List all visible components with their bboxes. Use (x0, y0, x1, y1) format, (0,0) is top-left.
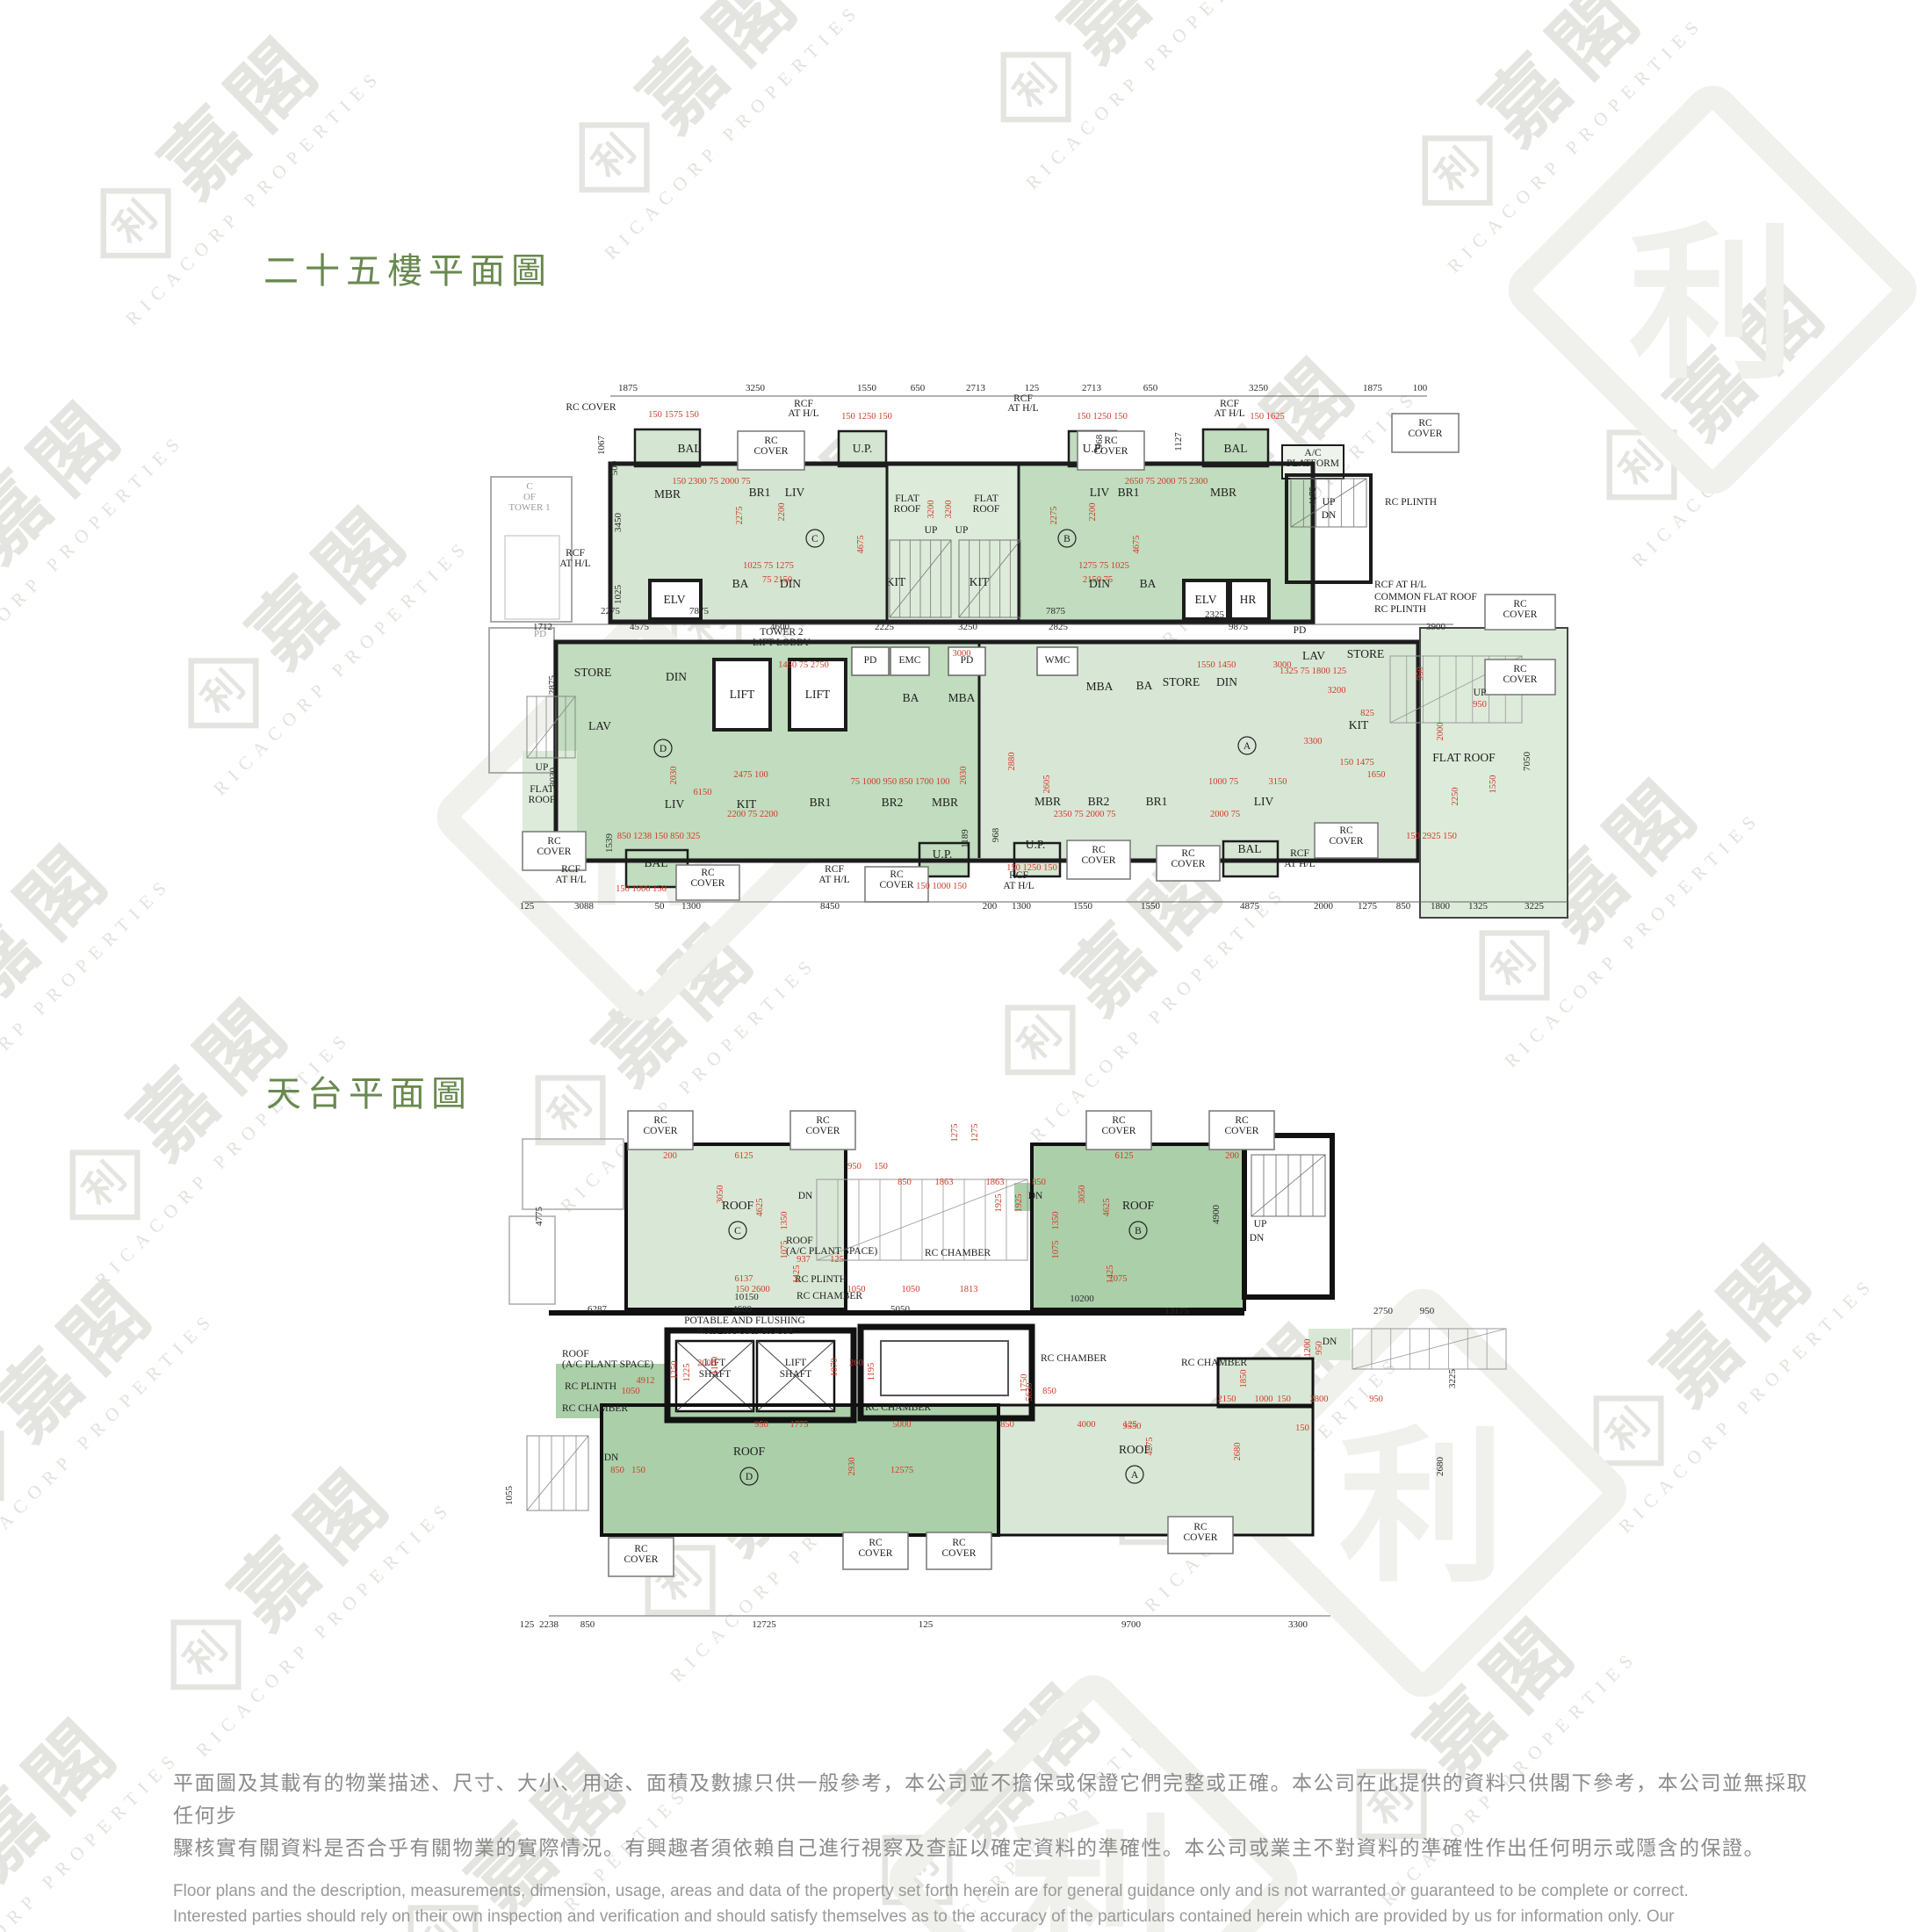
plan-label: 3225 (1525, 901, 1545, 912)
plan-label: COVER (1171, 859, 1206, 869)
plan-label: 2713 (1082, 383, 1102, 393)
plan-label: 2200 (777, 503, 787, 522)
ricacorp-watermark: 利嘉閣RICACORP PROPERTIES (122, 1426, 458, 1762)
plan-label: 1195 (867, 1363, 876, 1381)
plan-label: 1650 (1367, 770, 1386, 780)
plan-label: 4675 (856, 536, 866, 554)
plan-label: 968 (991, 827, 1001, 842)
plan-label: 2000 75 (1210, 810, 1240, 819)
plan-label: 2200 (1088, 503, 1098, 522)
plan-label: 4575 (630, 622, 650, 632)
ricacorp-logo-icon: 利 (101, 188, 171, 258)
plan-label: COMMON FLAT ROOF (1374, 592, 1477, 602)
plan-label: COVER (1409, 429, 1443, 439)
plan-label: 13175 (1164, 1306, 1189, 1316)
plan-label: MBA (1086, 680, 1114, 693)
plan-label: 1925 (994, 1194, 1004, 1213)
plan-label: RC COVER (566, 402, 616, 413)
plan-label: U.P. (933, 847, 953, 861)
plan-label: 4600 (770, 622, 790, 632)
plan-label: TOWER 1 (508, 502, 550, 513)
plan-label: PD (864, 655, 877, 666)
plan-label: 5000 (893, 1420, 912, 1430)
plan-label: ROOF (529, 795, 556, 805)
plan-label: 1350 (780, 1212, 789, 1230)
plan-label: 125 (919, 1619, 934, 1630)
plan-label: COVER (1225, 1126, 1259, 1136)
plan-label: 2275 (1049, 507, 1059, 525)
plan-label: 2225 (875, 622, 895, 632)
plan-label: 2750 (1373, 1306, 1394, 1316)
plan-label: STORE (1347, 647, 1385, 660)
ricacorp-watermark: 利嘉閣RICACORP PROPERTIES (21, 956, 357, 1292)
plan-label: MBR (932, 796, 958, 809)
plan-label: 4900 (1211, 1205, 1222, 1225)
plan-label: 3200 (926, 501, 936, 519)
ricacorp-logo-icon: 利 (1423, 135, 1493, 205)
plan-label: DN (1322, 510, 1337, 521)
ricacorp-logo-icon: 利 (0, 1431, 4, 1501)
plan-label: 75 1000 950 850 1700 100 (851, 777, 950, 787)
plan-label: 4675 (1132, 536, 1142, 554)
unit-circle-label: D (660, 744, 667, 754)
plan-label: 200 (849, 1359, 863, 1368)
plan-label: COVER (1082, 855, 1116, 866)
plan-label: 1075 (1051, 1241, 1061, 1259)
plan-label: RC (701, 868, 715, 878)
plan-label: 150 1000 150 (916, 882, 967, 891)
plan-label: LIV (1090, 486, 1110, 499)
plan-label: DN (798, 1191, 813, 1201)
plan-label: 1050 (902, 1285, 920, 1294)
plan-label: 1300 (1012, 901, 1032, 912)
plan-label: 150 (1277, 1395, 1291, 1404)
plan-label: RC PLINTH (795, 1274, 847, 1285)
plan-label: 850 (1396, 901, 1411, 912)
plan-label: 75 2150 (762, 575, 792, 585)
plan-label: 1050 (622, 1387, 640, 1396)
plan-label: 3150 (1269, 777, 1287, 787)
plan-label: 5630 (1025, 1383, 1034, 1402)
plan-label: COVER (537, 847, 572, 857)
disclaimer: 平面圖及其載有的物業描述、尺寸、大小、用途、面積及數據只供一般參考，本公司並不擔… (173, 1767, 1820, 1932)
plan-label: 6125 (735, 1151, 753, 1161)
plan-label: 150 1575 150 (648, 410, 699, 420)
plan-label: 1000 75 (1208, 777, 1238, 787)
plan-label: 850 1238 150 850 325 (617, 832, 701, 841)
plan-label: MBR (1034, 795, 1061, 808)
plan-label: 6137 (735, 1274, 753, 1284)
plan-label: RC (1235, 1115, 1249, 1126)
plan-label: 2000 (1314, 901, 1334, 912)
plan-label: 2680 (1435, 1457, 1445, 1477)
plan-label: FLAT (895, 494, 919, 504)
plan-label: 12725 (752, 1619, 776, 1630)
page: 利嘉閣RICACORP PROPERTIES利嘉閣RICACORP PROPER… (0, 0, 1932, 1932)
plan-label: DIN (1216, 675, 1237, 688)
plan-label: MBR (1210, 486, 1236, 499)
ricacorp-logo-icon: 利 (1594, 1395, 1664, 1466)
disclaimer-zh-line1: 平面圖及其載有的物業描述、尺寸、大小、用途、面積及數據只供一般參考，本公司並不擔… (173, 1767, 1820, 1832)
plan-label: 3200 (944, 501, 954, 519)
plan-label: 1225 (682, 1364, 692, 1382)
plan-label: UP (925, 525, 938, 536)
plan-label: 1539 (604, 833, 615, 854)
plan-label: AT H/L (1003, 881, 1034, 891)
ricacorp-watermark: 利嘉閣RICACORP PROPERTIES (952, 0, 1287, 194)
plan-label: KIT (886, 575, 906, 588)
plan-label: 125 (520, 1619, 535, 1630)
ricacorp-logo-icon: 利 (189, 658, 259, 728)
plan-label: 1000 (1255, 1395, 1273, 1404)
plan-label: 850 (1000, 1420, 1014, 1430)
plan-label: LIFT (730, 688, 755, 701)
plan-label: BR1 (1146, 795, 1168, 808)
plan-label: COVER (942, 1548, 977, 1559)
plan-label: UP (1323, 497, 1336, 508)
floor-plan-roof: RCCOVERRCCOVERRCCOVERRCCOVERRCCOVERRCCOV… (487, 1102, 1603, 1655)
plan-label: 200 (983, 901, 998, 912)
plan-label: LIV (1254, 795, 1274, 808)
plan-label: 950 (754, 1420, 768, 1430)
plan-label: 3300 (1304, 737, 1323, 746)
plan-label: 1425 (1106, 1265, 1115, 1284)
plan-label: 1325 75 1800 125 (1280, 667, 1346, 676)
plan-label: RC (1104, 436, 1118, 446)
plan-label: 1189 (960, 829, 970, 848)
plan-label: 9550 (1123, 1422, 1142, 1431)
plan-label: WATER PUMP ROOM (696, 1326, 792, 1337)
ricacorp-logo-icon: 利 (1001, 52, 1071, 122)
plan-label: RC (952, 1538, 966, 1548)
plan-label: RC (547, 836, 561, 847)
plan-label: LIFT (805, 688, 831, 701)
unit-circle-label: A (1131, 1470, 1139, 1481)
plan-label: COVER (1102, 1126, 1136, 1136)
unit-circle-label: B (1063, 534, 1071, 544)
plan-label: KIT (1349, 718, 1369, 732)
plan-label: 1875 (618, 383, 638, 393)
plan-label: 4625 (1102, 1199, 1112, 1217)
plan-label: 2800 (1310, 1395, 1329, 1404)
plan-label: 2000 (1436, 723, 1445, 741)
plan-label: 1055 (504, 1486, 515, 1506)
plan-label: 150 1000 150 (616, 884, 667, 894)
plan-label: RC CHAMBER (1041, 1353, 1107, 1364)
plan-label: 125 (830, 1255, 844, 1265)
plan-label: 50 (655, 901, 666, 912)
plan-label: AT H/L (1007, 403, 1038, 414)
plan-label: BR1 (810, 796, 832, 809)
plan-label: BR2 (1088, 795, 1110, 808)
plan-label: LAV (1302, 649, 1325, 662)
plan-label: RCF AT H/L (1374, 580, 1426, 590)
plan-label: KIT (970, 575, 990, 588)
plan-label: MBA (948, 691, 976, 704)
plan-label: 150 (1295, 1424, 1309, 1433)
plan-label: POTABLE AND FLUSHING (684, 1316, 805, 1326)
plan-label: RC (869, 1538, 883, 1548)
plan-label: 1550 (1073, 901, 1093, 912)
plan-label: 150 1625 (1250, 412, 1284, 422)
plan-label: 2275 (601, 606, 621, 616)
plan-label: LIFT LOBBY (753, 638, 811, 648)
plan-label: 1275 (970, 1124, 980, 1143)
plan-label: 950 (1369, 1395, 1383, 1404)
plan-label: 5050 (890, 1304, 911, 1315)
plan-label: RC (653, 1115, 667, 1126)
plan-label: 9875 (1229, 622, 1249, 632)
plan-label: 3200 (1328, 686, 1346, 696)
plan-label: 4175 (1308, 487, 1318, 507)
plan-label: ROOF (894, 504, 921, 515)
plan-label: U.P. (1083, 442, 1103, 455)
plan-label: 1100 (710, 1357, 720, 1375)
plan-label: 2680 (1233, 1443, 1243, 1461)
plan-label: 1067 (596, 436, 607, 456)
plan-label: 6150 (694, 788, 712, 797)
plan-label: 200 (1225, 1151, 1239, 1161)
plan-label: RC (764, 436, 778, 446)
plan-label: UP (955, 525, 969, 536)
plan-label: 7050 (1522, 752, 1532, 772)
plan-label: BA (1140, 577, 1157, 590)
title-25th-floor-plan: 二十五樓平面圖 (263, 242, 552, 293)
plan-label: 2238 (539, 1619, 559, 1630)
plan-label: KIT (737, 797, 757, 811)
plan-label: HR (1240, 593, 1257, 606)
plan-label: BA (732, 577, 749, 590)
plan-label: 3250 (958, 622, 978, 632)
plan-label: COVER (1184, 1532, 1218, 1543)
plan-label: RC PLINTH (565, 1381, 616, 1392)
plan-label: 825 (1360, 709, 1374, 718)
plan-label: 950 (847, 1162, 861, 1171)
plan-label: WMC (1045, 655, 1071, 666)
plan-label: 2275 (735, 507, 745, 525)
plan-label: 200 (663, 1151, 677, 1161)
ricacorp-watermark: 利嘉閣RICACORP PROPERTIES (0, 1237, 220, 1573)
plan-label: ROOF (973, 504, 1000, 515)
ricacorp-watermark: 利嘉閣RICACORP PROPERTIES (530, 0, 866, 264)
plan-label: COVER (859, 1548, 893, 1559)
plan-label: 4875 (1240, 901, 1260, 912)
plan-label: RC PLINTH (1385, 497, 1437, 508)
plan-label: 2880 (1007, 753, 1017, 771)
plan-label: 1550 (1141, 901, 1161, 912)
plan-label: RC CHAMBER (562, 1403, 628, 1414)
plan-label: 3000 (953, 649, 971, 659)
ricacorp-logo-icon: 利 (1006, 1005, 1076, 1075)
plan-label: 4775 (534, 1207, 544, 1227)
plan-label: BAL (1238, 842, 1262, 855)
plan-label: 2875 (547, 675, 558, 696)
plan-label: 7875 (689, 606, 710, 616)
plan-label: 6287 (588, 1304, 608, 1315)
plan-label: 2713 (966, 383, 986, 393)
plan-label: 1775 (790, 1420, 809, 1430)
plan-label: 1350 (1051, 1212, 1061, 1230)
unit-circle-label: C (811, 534, 818, 544)
plan-label: 150 (631, 1466, 645, 1475)
plan-label: STORE (1163, 675, 1200, 688)
plan-label: 2325 (1205, 609, 1225, 620)
plan-label: 1925 (1014, 1194, 1024, 1213)
plan-label: PD (534, 629, 546, 639)
plan-label: DN (604, 1453, 619, 1463)
plan-label: AT H/L (555, 875, 586, 885)
plan-label: 1275 (1358, 901, 1378, 912)
plan-label: ROOF (722, 1199, 754, 1212)
plan-label: 1200 (1303, 1339, 1313, 1358)
plan-label: 850 (580, 1619, 595, 1630)
plan-label: 2475 100 (733, 770, 768, 780)
plan-label: 2825 (1049, 622, 1069, 632)
plan-label: 1325 (1468, 901, 1489, 912)
plan-label: RC (1193, 1522, 1207, 1532)
plan-label: 1863 (986, 1178, 1005, 1187)
plan-label: 1800 (1431, 901, 1451, 912)
plan-label: DIN (666, 670, 687, 683)
plan-label: 7875 (1046, 606, 1066, 616)
plan-label: 850 (1042, 1387, 1056, 1396)
plan-label: A/C (1304, 448, 1322, 458)
plan-label: UP (1474, 688, 1487, 698)
plan-label: 10200 (1070, 1294, 1094, 1304)
plan-label: U.P. (853, 442, 873, 455)
plan-label: PLATFORM (1287, 458, 1339, 469)
plan-label: 3050 (1078, 1186, 1087, 1204)
ricacorp-watermark: 利嘉閣RICACORP PROPERTIES (140, 465, 475, 800)
plan-label: DN (1028, 1191, 1043, 1201)
plan-label: 950 (1416, 667, 1425, 681)
plan-label: 4600 (732, 1304, 753, 1315)
plan-label: 1127 (1173, 432, 1184, 451)
plan-label: 3250 (746, 383, 766, 393)
plan-label: 650 (911, 383, 926, 393)
plan-label: 1275 (950, 1124, 960, 1143)
plan-label: RCF (566, 548, 585, 559)
plan-label: 1875 (1363, 383, 1383, 393)
plan-label: 950 (1473, 700, 1487, 710)
plan-label: 8450 (820, 901, 840, 912)
plan-label: LAV (588, 719, 611, 732)
plan-label: UP (536, 762, 549, 773)
plan-label: ROOF (733, 1445, 766, 1458)
plan-label: 150 1250 150 (1077, 412, 1128, 422)
plan-label: LIFT (785, 1358, 806, 1368)
plan-label: ROOF (1122, 1199, 1155, 1212)
plan-label: 850 (898, 1178, 912, 1187)
plan-label: 1070 (830, 1359, 840, 1377)
plan-label: 950 (1420, 1306, 1435, 1316)
plan-label: 1863 (935, 1178, 954, 1187)
plan-label: MBR (654, 487, 681, 501)
plan-label: UP (1254, 1219, 1267, 1229)
plan-label: RC (1112, 1115, 1126, 1126)
plan-label: 2150 75 (1083, 575, 1113, 585)
plan-label: ELV (663, 593, 685, 606)
plan-label: 2930 (847, 1458, 857, 1476)
plan-label: RC CHAMBER (1181, 1358, 1247, 1368)
plan-label: 4625 (755, 1199, 765, 1217)
plan-label: RC (1339, 825, 1353, 836)
plan-label: 3450 (613, 513, 624, 533)
plan-label: 200 (697, 1359, 711, 1368)
plan-label: 3250 (1249, 383, 1269, 393)
plan-label: AT H/L (818, 875, 849, 885)
plan-label: 950 (1315, 1341, 1324, 1355)
plan-label: 9700 (1121, 1619, 1142, 1630)
plan-label: FLAT (530, 784, 553, 795)
plan-label: BA (1136, 679, 1153, 692)
plan-label: RC CHAMBER (925, 1248, 991, 1258)
plan-label: RC (1181, 848, 1195, 859)
ricacorp-logo-icon: 利 (171, 1619, 241, 1690)
plan-label: BR2 (882, 796, 904, 809)
plan-label: RC (1092, 845, 1106, 855)
unit-circle-label: C (734, 1226, 741, 1236)
floor-plan-25f: 1875325015506502713125271365032501875100… (487, 364, 1603, 944)
disclaimer-en-line2: Interested parties should rely on their … (173, 1904, 1820, 1929)
plan-label: RC (890, 869, 904, 880)
plan-label: EMC (899, 655, 921, 666)
plan-label: ROOF (786, 1236, 813, 1246)
plan-label: 850 (610, 1466, 624, 1475)
disclaimer-en-line1: Floor plans and the description, measure… (173, 1878, 1820, 1904)
plan-label: 1550 (857, 383, 877, 393)
plan-label: RC (816, 1115, 830, 1126)
ricacorp-watermark: 利嘉閣RICACORP PROPERTIES (0, 1676, 185, 1932)
plan-label: AT H/L (1284, 859, 1315, 869)
plan-label: RC (634, 1544, 648, 1554)
plan-label: 2350 75 2000 75 (1054, 810, 1116, 819)
unit-circle-label: B (1135, 1226, 1142, 1236)
plan-label: 2605 (1042, 775, 1052, 794)
plan-label: 2150 (1218, 1395, 1236, 1404)
plan-label: COVER (880, 880, 914, 890)
ricacorp-logo-icon: 利 (580, 122, 650, 192)
plan-label: SHAFT (780, 1369, 811, 1380)
plan-label: 125 (1025, 383, 1040, 393)
plan-label: STORE (574, 666, 612, 679)
plan-label: AT H/L (559, 559, 590, 569)
plan-label: RC PLINTH (1374, 604, 1426, 615)
plan-label: BAL (678, 442, 702, 455)
plan-label: DN (1250, 1233, 1265, 1244)
plan-label: 1550 1450 (1197, 660, 1236, 670)
plan-label: BAL (1224, 442, 1248, 455)
plan-label: AT H/L (788, 408, 818, 419)
plan-label: RC (1513, 599, 1527, 609)
plan-label: ELV (1194, 593, 1216, 606)
plan-label: BR1 (749, 486, 771, 499)
plan-label: OF (523, 492, 536, 502)
plan-label: 1025 (613, 585, 624, 605)
plan-label: COVER (1330, 836, 1364, 847)
plan-label: 150 2600 (735, 1285, 769, 1294)
plan-label: 150 1250 150 (841, 412, 892, 422)
plan-label: 100 (1413, 383, 1428, 393)
plan-label: 1550 (1489, 775, 1498, 794)
plan-label: 2650 75 2000 75 2300 (1125, 477, 1208, 487)
ricacorp-logo-icon: 利 (70, 1150, 141, 1220)
plan-label: PD (1294, 625, 1307, 636)
plan-label: 1250 (670, 1361, 680, 1380)
ricacorp-watermark: 利嘉閣RICACORP PROPERTIES (0, 359, 190, 695)
plan-label: 12575 (890, 1466, 913, 1475)
plan-label: ROOF (562, 1349, 589, 1359)
